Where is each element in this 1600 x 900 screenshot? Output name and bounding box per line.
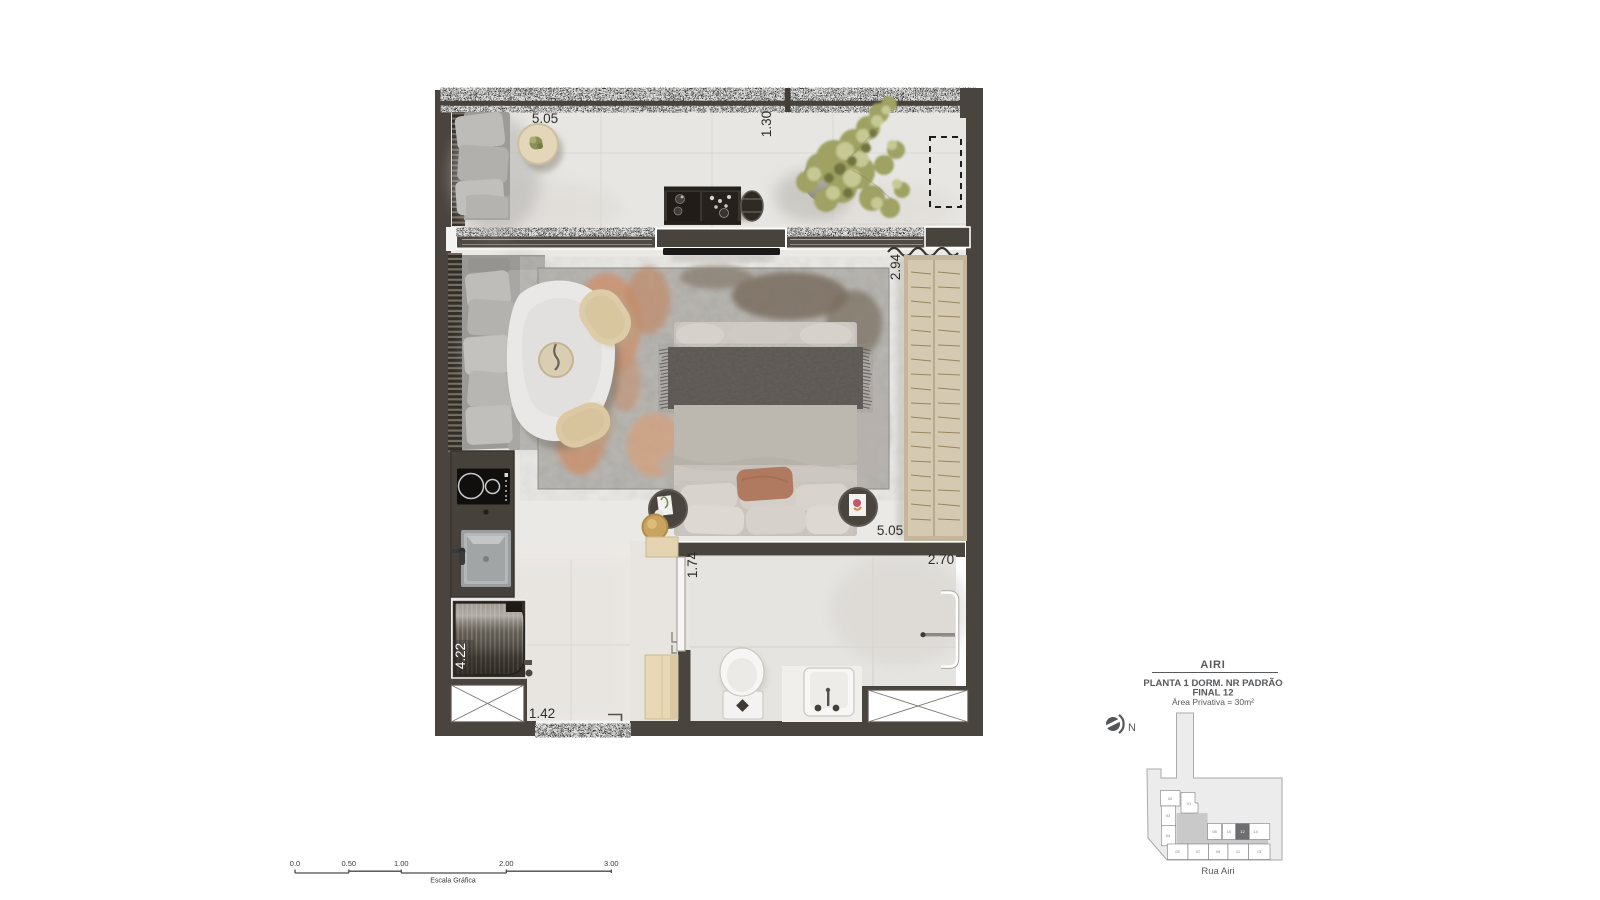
- svg-text:5.05: 5.05: [532, 111, 558, 126]
- svg-text:05: 05: [1175, 849, 1180, 854]
- svg-text:04: 04: [1166, 833, 1171, 838]
- svg-text:1.74: 1.74: [685, 551, 700, 578]
- svg-text:1.30: 1.30: [759, 111, 774, 137]
- svg-text:5.05: 5.05: [877, 523, 903, 538]
- svg-text:07: 07: [1196, 849, 1201, 854]
- svg-text:03: 03: [1166, 813, 1171, 818]
- svg-text:02: 02: [1168, 796, 1173, 801]
- svg-text:0.50: 0.50: [341, 859, 356, 868]
- svg-text:08: 08: [1212, 829, 1217, 834]
- svg-text:N: N: [1128, 722, 1136, 734]
- svg-text:2.00: 2.00: [499, 859, 514, 868]
- svg-text:0.0: 0.0: [290, 859, 300, 868]
- svg-text:AIRI: AIRI: [1200, 659, 1225, 671]
- svg-text:2.94: 2.94: [888, 253, 903, 280]
- svg-text:2.70: 2.70: [928, 552, 954, 567]
- svg-text:1.42: 1.42: [529, 706, 555, 721]
- svg-text:4.22: 4.22: [453, 643, 468, 669]
- svg-text:10: 10: [1227, 829, 1232, 834]
- svg-text:Escala Gráfica: Escala Gráfica: [430, 878, 476, 885]
- svg-text:12: 12: [1240, 829, 1245, 834]
- svg-text:Área Privativa = 30m²: Área Privativa = 30m²: [1172, 697, 1254, 707]
- svg-text:01: 01: [1187, 801, 1192, 806]
- svg-text:14: 14: [1253, 829, 1258, 834]
- svg-text:09: 09: [1216, 849, 1221, 854]
- svg-text:1.00: 1.00: [394, 859, 409, 868]
- svg-text:Rua Airi: Rua Airi: [1201, 866, 1234, 877]
- svg-text:13: 13: [1257, 849, 1262, 854]
- svg-text:3.00: 3.00: [604, 859, 619, 868]
